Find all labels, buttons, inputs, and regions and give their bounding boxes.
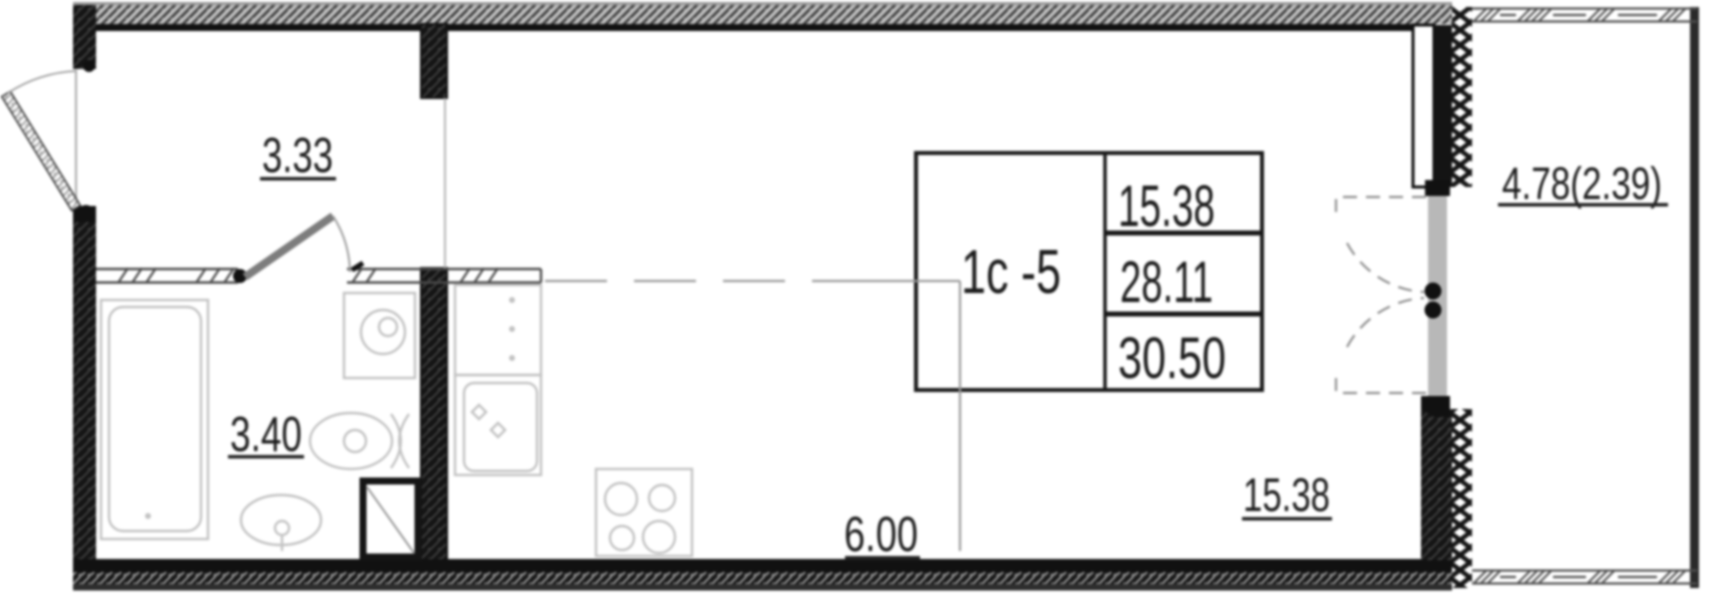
svg-text:3.40: 3.40 <box>230 408 302 462</box>
svg-text:6.00: 6.00 <box>844 508 918 562</box>
svg-text:4.78(2.39): 4.78(2.39) <box>1502 158 1662 209</box>
svg-text:1c -5: 1c -5 <box>961 238 1061 307</box>
svg-text:28.11: 28.11 <box>1120 250 1213 315</box>
svg-text:15.38: 15.38 <box>1118 174 1215 239</box>
svg-text:3.33: 3.33 <box>262 129 333 183</box>
svg-text:30.50: 30.50 <box>1118 326 1226 391</box>
svg-text:15.38: 15.38 <box>1243 468 1330 521</box>
